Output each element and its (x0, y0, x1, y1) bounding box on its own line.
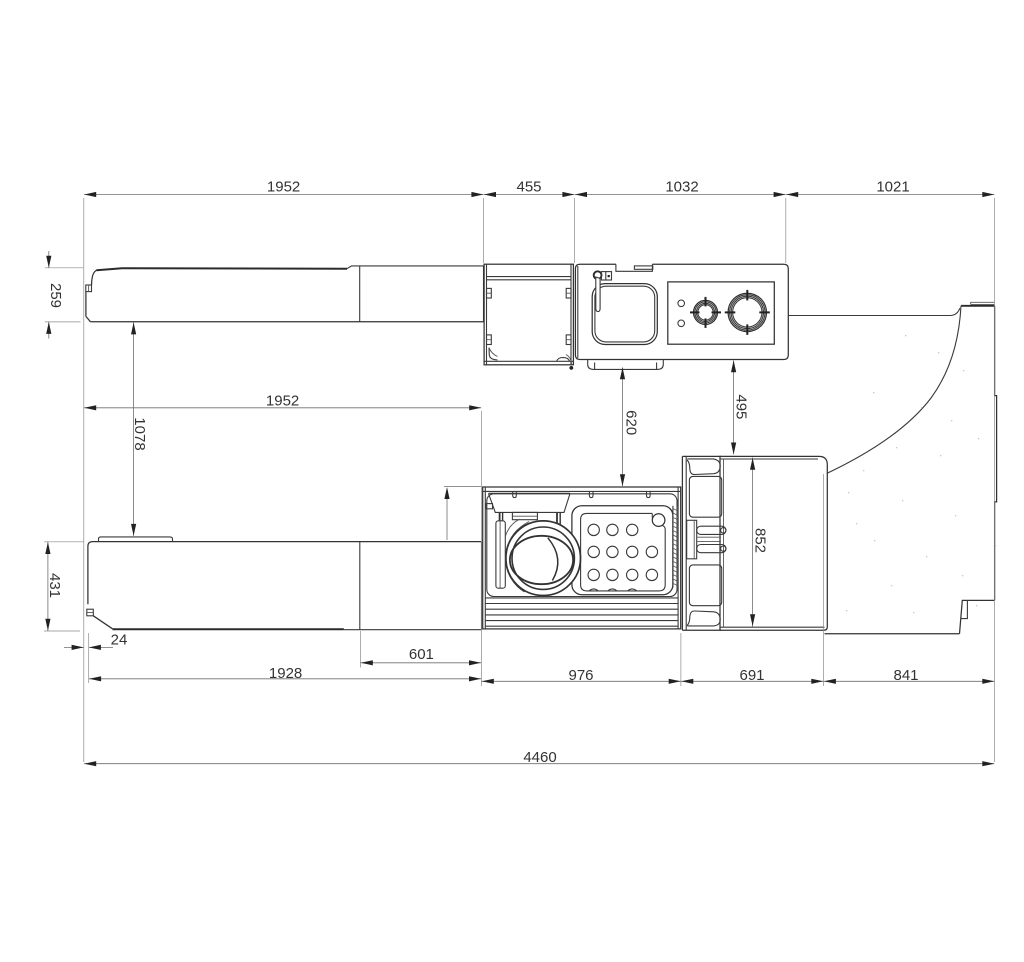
svg-text:1078: 1078 (131, 417, 148, 450)
svg-text:259: 259 (47, 283, 64, 308)
svg-text:841: 841 (893, 667, 918, 684)
svg-text:455: 455 (516, 179, 541, 196)
svg-text:1021: 1021 (876, 179, 909, 196)
svg-text:4460: 4460 (523, 749, 556, 766)
svg-text:24: 24 (111, 631, 128, 648)
svg-text:495: 495 (732, 394, 749, 419)
svg-text:1032: 1032 (665, 179, 698, 196)
svg-text:691: 691 (739, 667, 764, 684)
svg-text:976: 976 (568, 667, 593, 684)
svg-text:1952: 1952 (267, 179, 300, 196)
svg-text:431: 431 (46, 573, 63, 598)
svg-text:601: 601 (409, 646, 434, 663)
svg-text:1952: 1952 (266, 393, 299, 410)
svg-text:620: 620 (623, 410, 640, 435)
svg-text:1928: 1928 (269, 665, 302, 682)
svg-text:852: 852 (751, 528, 768, 553)
